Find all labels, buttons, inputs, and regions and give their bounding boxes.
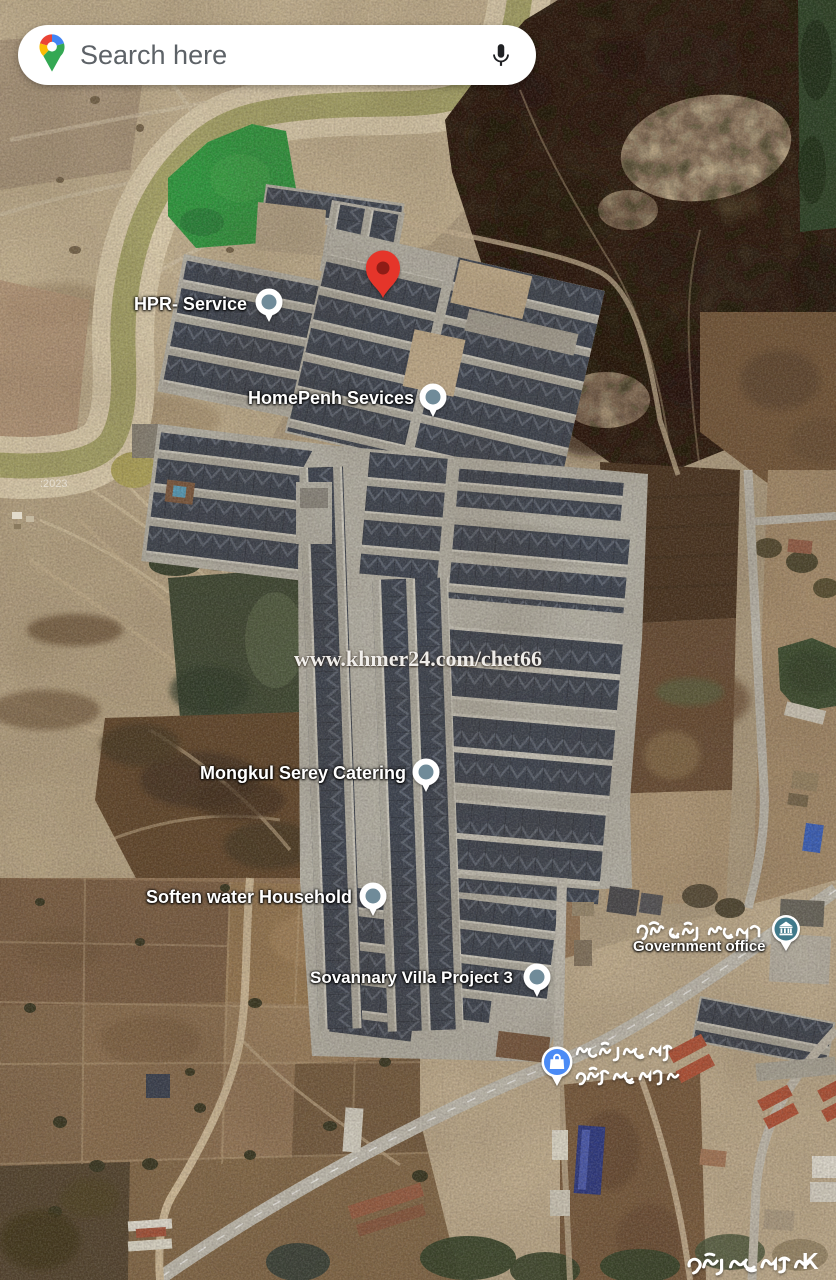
svg-text:K: K <box>802 1248 819 1274</box>
svg-text::2023: :2023 <box>40 478 68 490</box>
